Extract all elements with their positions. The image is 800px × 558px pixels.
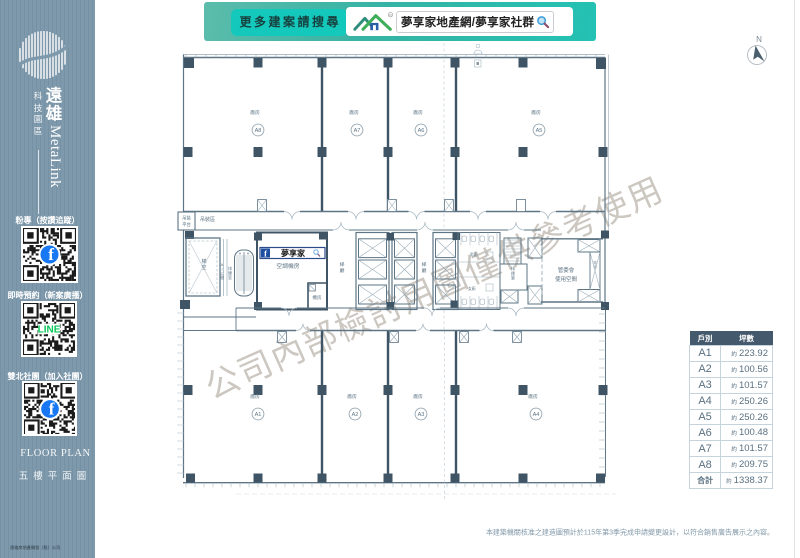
svg-text:使用空間: 使用空間 [555,275,578,283]
svg-text:女廁: 女廁 [468,286,476,291]
svg-text:平台: 平台 [182,221,191,228]
svg-text:吊裝: 吊裝 [182,215,191,222]
svg-text:廠房: 廠房 [347,393,357,400]
svg-text:f: f [48,245,54,264]
svg-text:A3: A3 [418,412,425,418]
svg-text:廳: 廳 [340,267,345,274]
svg-text:吊裝區: 吊裝區 [200,216,215,223]
svg-text:空: 空 [201,264,206,271]
svg-text:廠房: 廠房 [349,109,359,116]
svg-text:間: 間 [220,274,224,280]
svg-text:廠房: 廠房 [413,393,423,400]
svg-text:廠房: 廠房 [250,109,260,116]
svg-text:本建築機關核准之建造圖預計於115年第3季完成申請變更設計，: 本建築機關核准之建造圖預計於115年第3季完成申請變更設計，以符合銷售廣告展示之… [486,528,774,537]
svg-text:廠房: 廠房 [413,109,423,116]
svg-text:空調機房: 空調機房 [276,262,299,270]
svg-text:A5: A5 [536,128,543,134]
svg-text:公司內部檢討用圖僅供參考使用: 公司內部檢討用圖僅供參考使用 [200,170,669,407]
svg-text:A7: A7 [354,128,361,134]
svg-text:廳: 廳 [422,267,427,274]
svg-text:LINE: LINE [38,324,61,335]
svg-text:梯: 梯 [340,261,345,268]
svg-text:f: f [264,249,267,259]
svg-text:A8: A8 [255,128,262,134]
svg-text:廠房: 廠房 [250,393,260,400]
svg-text:室: 室 [511,275,515,281]
svg-text:A1: A1 [255,412,262,418]
svg-text:R: R [389,13,392,17]
svg-text:室: 室 [228,274,232,280]
svg-text:f: f [49,399,55,418]
svg-text:A4: A4 [533,412,540,418]
svg-text:梯: 梯 [593,264,597,269]
svg-text:A6: A6 [418,128,425,134]
svg-text:梯: 梯 [201,258,206,265]
svg-text:A2: A2 [352,412,359,418]
svg-text:管委會: 管委會 [558,266,575,274]
svg-text:夢享家: 夢享家 [281,248,306,258]
svg-text:機房: 機房 [312,294,322,301]
svg-text:廠房: 廠房 [528,393,538,400]
svg-text:廠房: 廠房 [531,109,541,116]
svg-text:男廁: 男廁 [470,252,478,257]
svg-text:梯: 梯 [422,261,427,268]
svg-text:N: N [756,35,762,44]
